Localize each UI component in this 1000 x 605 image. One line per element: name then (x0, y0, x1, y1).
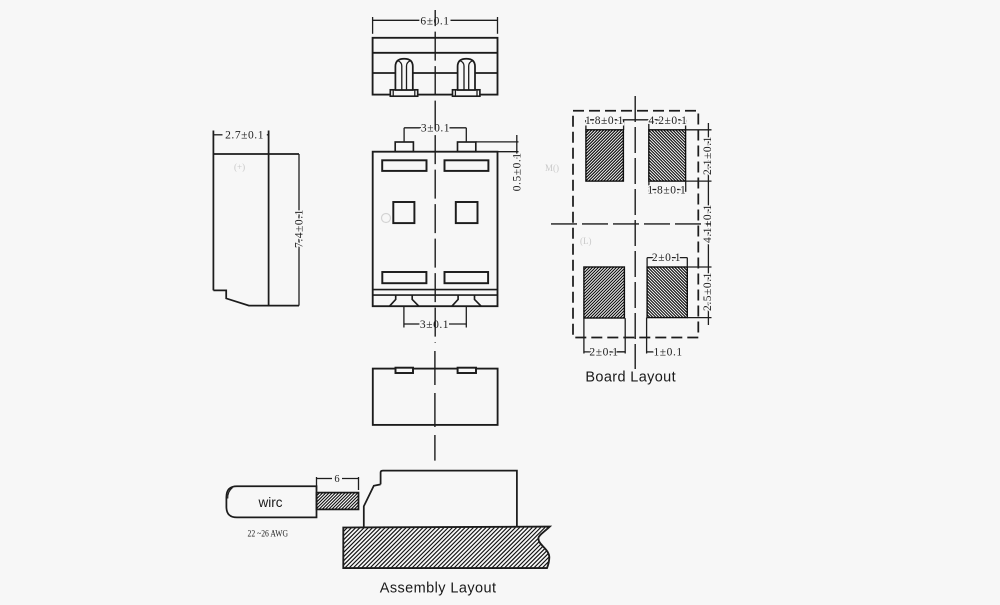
svg-text:1.8±0.1: 1.8±0.1 (647, 184, 686, 196)
svg-text:wirc: wirc (258, 495, 283, 510)
svg-text:1.8±0.1: 1.8±0.1 (585, 115, 624, 127)
svg-text:M(): M() (545, 163, 559, 173)
svg-text:Board Layout: Board Layout (585, 369, 675, 385)
svg-text:(+): (+) (234, 162, 245, 172)
svg-text:4.2±0.1: 4.2±0.1 (649, 115, 688, 127)
svg-text:2.5±0.1: 2.5±0.1 (702, 272, 714, 311)
svg-text:Assembly Layout: Assembly Layout (380, 581, 496, 597)
svg-text:(L): (L) (580, 236, 592, 246)
svg-text:6: 6 (334, 474, 339, 485)
svg-text:2.1±0.1: 2.1±0.1 (702, 136, 714, 175)
svg-text:1±0.1: 1±0.1 (654, 347, 683, 359)
svg-text:2±0.1: 2±0.1 (652, 252, 681, 264)
svg-text:7.4±0.1: 7.4±0.1 (294, 209, 306, 248)
svg-text:22 ~26 AWG: 22 ~26 AWG (248, 528, 289, 539)
svg-text:2.7±0.1: 2.7±0.1 (225, 130, 264, 142)
svg-text:0.5±0.1: 0.5±0.1 (511, 152, 523, 191)
svg-text:2±0.1: 2±0.1 (589, 347, 618, 359)
